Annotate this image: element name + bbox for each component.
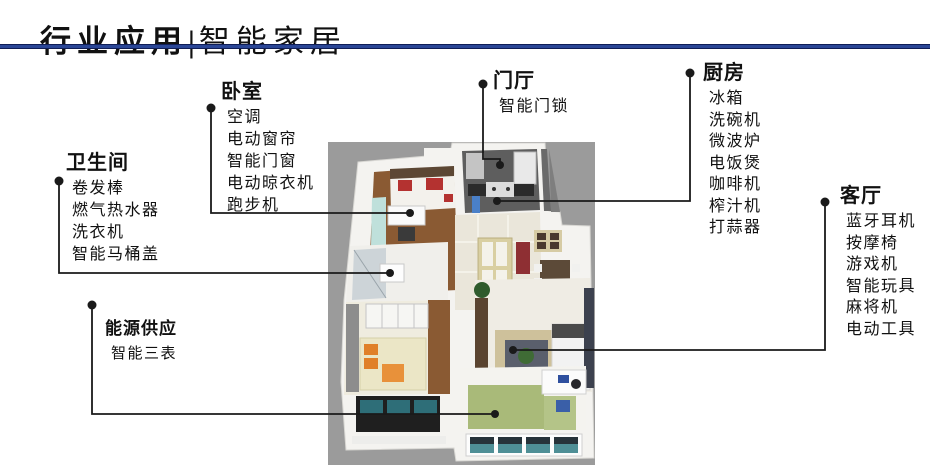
list-item: 蓝牙耳机 (846, 211, 916, 233)
list-item: 智能三表 (111, 343, 177, 365)
bedroom-bullet-dot (207, 104, 216, 113)
kitchen-anchor-dot (493, 197, 501, 205)
list-item: 智能门窗 (227, 151, 315, 173)
list-item: 卷发棒 (72, 178, 160, 200)
callout-bedroom: 卧室 空调 电动窗帘 智能门窗 电动晾衣机 跑步机 (221, 79, 315, 217)
bathroom-items: 卷发棒 燃气热水器 洗衣机 智能马桶盖 (66, 178, 160, 266)
list-item: 冰箱 (709, 88, 762, 110)
energy-bullet-dot (88, 301, 97, 310)
entrance-heading: 门厅 (493, 68, 569, 94)
energy-anchor-dot (491, 410, 499, 418)
energy-heading: 能源供应 (105, 318, 177, 340)
list-item: 空调 (227, 107, 315, 129)
living-items: 蓝牙耳机 按摩椅 游戏机 智能玩具 麻将机 电动工具 (840, 211, 916, 340)
list-item: 洗衣机 (72, 222, 160, 244)
callout-energy: 能源供应 智能三表 (105, 318, 177, 365)
list-item: 燃气热水器 (72, 200, 160, 222)
kitchen-items: 冰箱 洗碗机 微波炉 电饭煲 咖啡机 榨汁机 打蒜器 (703, 88, 762, 239)
energy-items: 智能三表 (105, 343, 177, 365)
entrance-bullet-dot (479, 80, 488, 89)
bathroom-anchor-dot (386, 269, 394, 277)
bathroom-heading: 卫生间 (66, 150, 160, 176)
list-item: 洗碗机 (709, 110, 762, 132)
living-heading: 客厅 (840, 183, 916, 209)
list-item: 游戏机 (846, 254, 916, 276)
list-item: 电饭煲 (709, 153, 762, 175)
list-item: 按摩椅 (846, 233, 916, 255)
living-bullet-dot (821, 198, 830, 207)
list-item: 跑步机 (227, 195, 315, 217)
list-item: 榨汁机 (709, 196, 762, 218)
list-item: 麻将机 (846, 297, 916, 319)
slide-canvas: 行业应用|智能家居 (0, 0, 930, 471)
bathroom-bullet-dot (55, 177, 64, 186)
list-item: 电动工具 (846, 319, 916, 341)
callout-entrance: 门厅 智能门锁 (493, 68, 569, 118)
entrance-items: 智能门锁 (493, 96, 569, 118)
list-item: 电动窗帘 (227, 129, 315, 151)
bedroom-items: 空调 电动窗帘 智能门窗 电动晾衣机 跑步机 (221, 107, 315, 217)
kitchen-heading: 厨房 (703, 60, 762, 86)
list-item: 智能马桶盖 (72, 244, 160, 266)
callout-living: 客厅 蓝牙耳机 按摩椅 游戏机 智能玩具 麻将机 电动工具 (840, 183, 916, 340)
callout-bathroom: 卫生间 卷发棒 燃气热水器 洗衣机 智能马桶盖 (66, 150, 160, 266)
bedroom-heading: 卧室 (221, 79, 315, 105)
list-item: 智能玩具 (846, 276, 916, 298)
kitchen-bullet-dot (686, 69, 695, 78)
list-item: 咖啡机 (709, 174, 762, 196)
bedroom-anchor-dot (406, 209, 414, 217)
list-item: 电动晾衣机 (227, 173, 315, 195)
living-connector (509, 198, 830, 355)
living-anchor-dot (509, 346, 517, 354)
list-item: 智能门锁 (499, 96, 569, 118)
callout-kitchen: 厨房 冰箱 洗碗机 微波炉 电饭煲 咖啡机 榨汁机 打蒜器 (703, 60, 762, 239)
list-item: 打蒜器 (709, 217, 762, 239)
list-item: 微波炉 (709, 131, 762, 153)
entrance-anchor-dot (496, 161, 504, 169)
